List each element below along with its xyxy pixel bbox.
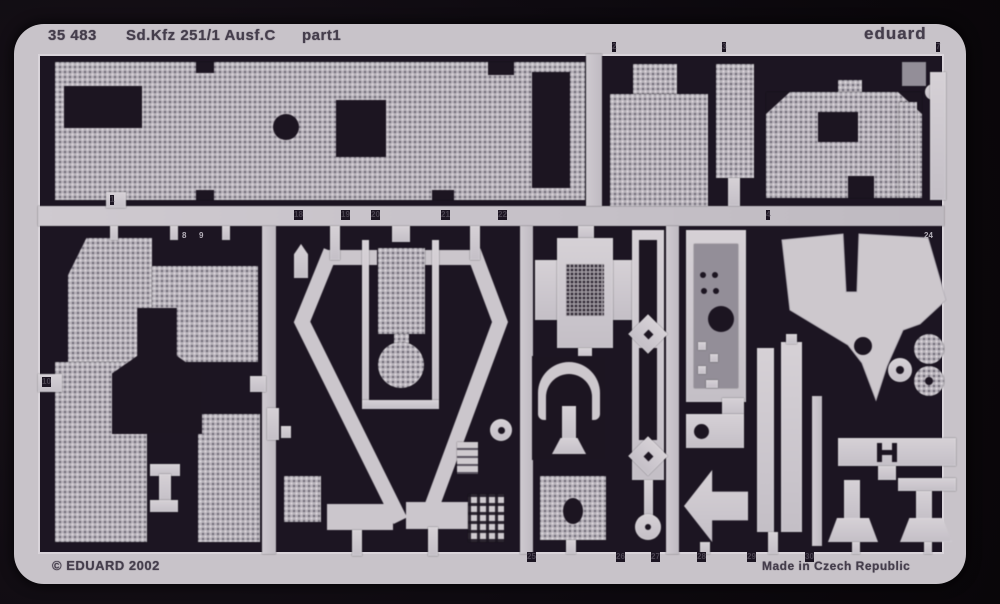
horizontal-divider-rail: [38, 206, 944, 226]
panel-rivet: [706, 380, 718, 388]
channel-sprue-tab: [392, 226, 410, 242]
panel-large-hole: [708, 306, 734, 332]
part-1-slot-cutout: [532, 72, 570, 188]
part-20-textured-disc: [378, 342, 424, 388]
mesh-grille-part: [468, 494, 504, 542]
ladder-strip-slot-1: [639, 240, 657, 326]
v-frame-sprue-tab: [470, 226, 480, 260]
bracket-hole: [694, 424, 709, 439]
wing-plate-hole: [854, 337, 872, 355]
sheet-label: part1: [302, 27, 341, 44]
part-1-rect-cutout: [64, 86, 142, 128]
pedestal-top-bar: [898, 478, 956, 491]
sprue-nub: [222, 226, 230, 240]
fender-side-tab: [250, 376, 266, 392]
etched-parts-layer: [0, 0, 1000, 604]
channel-left-bar: [362, 240, 369, 408]
sprue-nub: [924, 542, 932, 554]
v-frame-left-foot: [327, 504, 393, 530]
part-4-center-cutout: [818, 112, 858, 142]
v-frame-right-strap: [429, 258, 500, 514]
arrow-shaped-part: [684, 470, 748, 542]
part-3-sprue-tab: [728, 178, 740, 206]
part-1-tread-floor-plate: [55, 62, 585, 200]
long-strip-part-1: [757, 348, 774, 532]
h-bar-stem: [878, 466, 896, 480]
sprue-nub: [768, 532, 778, 554]
washer-ring-hole: [896, 366, 904, 374]
part-3-strip: [716, 64, 754, 178]
part-4-bottom-notch: [848, 176, 874, 198]
long-strip-cap: [786, 334, 797, 344]
small-block-part: [281, 426, 291, 438]
ring-washer-hole: [498, 427, 505, 434]
set-title: Sd.Kfz 251/1 Ausf.C: [126, 27, 276, 44]
h-cutout-crossbar: [877, 450, 897, 455]
cross-plate-etched-emblem: [566, 264, 604, 316]
part-1-top-notch-2: [488, 62, 514, 75]
part-10-number-tab: [38, 374, 62, 392]
i-beam-part-bottom-cap: [150, 500, 178, 512]
part-7-flat-strip: [930, 72, 946, 200]
v-frame-foot-tab: [352, 530, 362, 556]
vertical-rail-3: [666, 226, 679, 554]
channel-bottom-bar: [362, 400, 439, 409]
sprue-nub: [170, 226, 178, 240]
sprue-nub: [700, 542, 710, 554]
vertical-rail-top: [586, 54, 602, 206]
small-strip-part: [267, 408, 279, 440]
part-1-square-cutout: [336, 100, 386, 157]
v-frame-sprue-tab: [330, 226, 340, 260]
hatch-oval-cutout: [563, 498, 583, 524]
pedestal-part-1-stem: [844, 480, 860, 520]
part-1-bottom-notch-2: [432, 190, 454, 200]
small-disc-hole: [645, 524, 651, 530]
part-2-top-tab: [633, 64, 677, 98]
panel-hole: [701, 288, 707, 294]
h-bar-part: [838, 438, 956, 466]
i-beam-part-stem: [159, 474, 171, 502]
cap-disc-hole: [925, 377, 933, 385]
channel-right-bar: [432, 240, 439, 408]
panel-rivet: [698, 342, 706, 350]
textured-cap-disc-1: [914, 334, 944, 364]
part-20-textured-lid: [378, 248, 425, 334]
sprue-nub: [110, 226, 118, 240]
photo-etch-fret-photo: 35 483 Sd.Kfz 251/1 Ausf.C part1 eduard …: [0, 0, 1000, 604]
part-7-textured-strip: [899, 102, 917, 198]
v-frame-right-foot: [406, 502, 468, 529]
panel-hole: [700, 272, 706, 278]
brand-logo: eduard: [864, 24, 927, 44]
origin-text: Made in Czech Republic: [762, 559, 910, 573]
v-frame-foot-tab: [428, 527, 438, 556]
sprue-nub: [566, 540, 576, 554]
pedestal-part-1-base: [828, 518, 878, 542]
part-1-round-hole: [273, 114, 299, 140]
panel-hole: [712, 272, 718, 278]
long-strip-part-2: [781, 342, 802, 532]
ladder-strip-stem: [644, 480, 653, 516]
panel-rivet: [698, 366, 706, 374]
shovel-handle-stem: [562, 406, 576, 442]
catalog-number: 35 483: [48, 27, 97, 44]
fender-panel-lower-right: [198, 414, 260, 542]
part-1-bottom-notch: [196, 190, 214, 200]
pedestal-part-2-stem: [916, 491, 932, 520]
ladder-strip-slot-2: [639, 348, 657, 440]
part-1-number-tab: [106, 192, 126, 208]
copyright-text: © EDUARD 2002: [52, 558, 160, 573]
part-2-plate: [610, 94, 708, 206]
panel-hole: [713, 288, 719, 294]
louvered-small-part: [457, 442, 478, 474]
part-1-top-notch: [196, 62, 214, 73]
part-7-small-plate: [902, 62, 926, 86]
small-textured-plate: [284, 476, 321, 522]
pedestal-part-2-base: [900, 518, 952, 542]
sprue-nub: [852, 542, 860, 554]
panel-rivet: [710, 354, 718, 362]
